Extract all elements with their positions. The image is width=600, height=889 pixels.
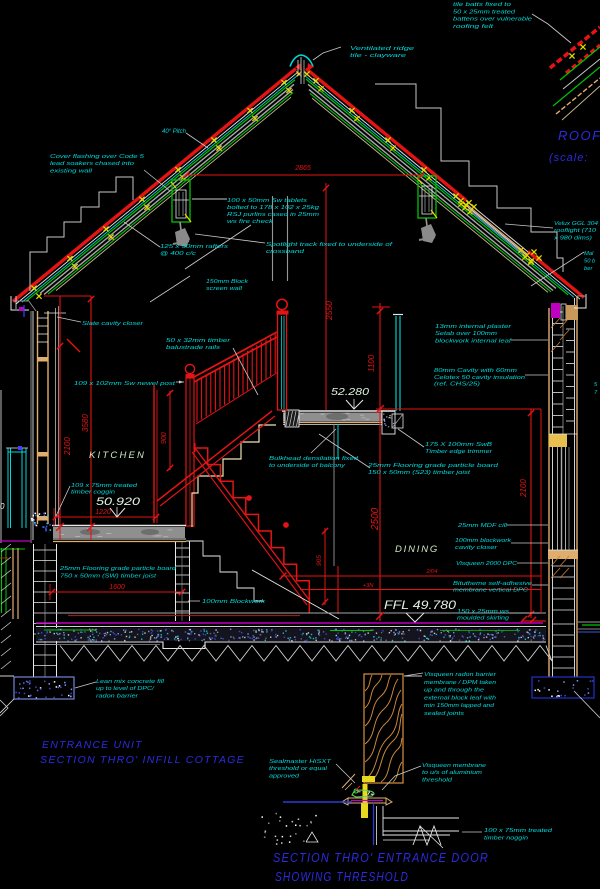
svg-text:up to level of DPC/: up to level of DPC/ — [96, 686, 156, 692]
svg-text:1100: 1100 — [367, 354, 376, 372]
svg-text:Cover flashing over Code 5: Cover flashing over Code 5 — [50, 154, 145, 160]
svg-text:750 x 50mm (SW) timber joist: 750 x 50mm (SW) timber joist — [60, 574, 156, 580]
svg-text:ws fire check: ws fire check — [227, 219, 274, 225]
svg-text:DINING: DINING — [395, 544, 439, 555]
svg-text:2865: 2865 — [294, 165, 311, 172]
svg-text:50.920: 50.920 — [96, 496, 141, 508]
svg-text:ENTRANCE UNIT: ENTRANCE UNIT — [42, 739, 143, 751]
svg-text:13mm internal plaster: 13mm internal plaster — [435, 324, 512, 330]
svg-text:50 x 32mm timber: 50 x 32mm timber — [166, 338, 231, 344]
svg-text:membrane / DPM taken: membrane / DPM taken — [424, 680, 496, 686]
svg-text:tile - clayware: tile - clayware — [350, 53, 407, 59]
svg-text:blockwork internal leaf: blockwork internal leaf — [435, 338, 513, 344]
svg-text:SECTION THRO' ENTRANCE DOOR: SECTION THRO' ENTRANCE DOOR — [273, 850, 489, 865]
svg-text:100 x 50mm Sw tablets: 100 x 50mm Sw tablets — [227, 198, 307, 204]
svg-text:membrane vertical DPC: membrane vertical DPC — [453, 588, 529, 594]
svg-text:to u/s of aluminium: to u/s of aluminium — [422, 770, 482, 776]
svg-text:RSJ purlins cased in 25mm: RSJ purlins cased in 25mm — [227, 212, 319, 218]
svg-text:125 x 50mm rafters: 125 x 50mm rafters — [160, 244, 228, 250]
svg-text:1600: 1600 — [109, 584, 125, 591]
svg-text:Velux GGL 304: Velux GGL 304 — [554, 221, 598, 227]
svg-text:150mm Block: 150mm Block — [206, 279, 249, 285]
svg-text:existing wall: existing wall — [50, 168, 93, 174]
svg-text:2500: 2500 — [370, 507, 381, 531]
svg-text:ber: ber — [584, 266, 593, 272]
svg-text:roofing felt: roofing felt — [453, 24, 494, 30]
svg-text:ROOF S: ROOF S — [558, 128, 600, 143]
svg-text:timber coggin: timber coggin — [71, 490, 115, 496]
svg-text:52.280: 52.280 — [331, 386, 369, 398]
svg-text:25mm Flooring grade particle b: 25mm Flooring grade particle board — [367, 463, 499, 469]
svg-text:Ventilated ridge: Ventilated ridge — [350, 46, 415, 52]
svg-text:up and through the: up and through the — [424, 688, 485, 694]
svg-text:2100: 2100 — [519, 479, 528, 498]
svg-text:SECTION THRO' INFILL COTTAGE: SECTION THRO' INFILL COTTAGE — [40, 754, 245, 766]
svg-text:905: 905 — [316, 555, 323, 566]
svg-text:900: 900 — [161, 432, 168, 444]
svg-text:FFL 49.780: FFL 49.780 — [384, 600, 457, 612]
svg-text:109 x 75mm treated: 109 x 75mm treated — [71, 483, 138, 489]
svg-text:150 x 50mm (S23) timber joist: 150 x 50mm (S23) timber joist — [368, 470, 471, 476]
svg-text:KITCHEN: KITCHEN — [89, 450, 146, 461]
svg-text:Bulkhead densilation fixed: Bulkhead densilation fixed — [269, 456, 359, 462]
svg-text:tile batts fixed to: tile batts fixed to — [453, 2, 512, 8]
svg-text:+3N: +3N — [363, 583, 375, 589]
svg-text:(scale:: (scale: — [549, 152, 588, 164]
svg-text:100mm blockwork: 100mm blockwork — [455, 538, 512, 544]
svg-text:bolted to 178 x 102 x 25kg: bolted to 178 x 102 x 25kg — [227, 205, 320, 211]
svg-text:to underside of balcony: to underside of balcony — [269, 463, 346, 469]
svg-text:50 b: 50 b — [584, 259, 596, 265]
svg-text:lead soakers chased into: lead soakers chased into — [50, 161, 135, 167]
svg-text:Bitutheme self-adhesive: Bitutheme self-adhesive — [453, 581, 533, 587]
svg-text:100mm Blockwork: 100mm Blockwork — [202, 599, 266, 605]
svg-text:threshold: threshold — [422, 777, 453, 783]
svg-text:rooflight (710: rooflight (710 — [554, 228, 597, 234]
svg-text:109 x 102mm Sw newel post: 109 x 102mm Sw newel post — [74, 381, 176, 387]
svg-text:25mm Flooring grade particle b: 25mm Flooring grade particle board — [59, 566, 177, 572]
svg-text:Spotlight track fixed to under: Spotlight track fixed to underside of — [266, 242, 394, 248]
svg-text:Visqueen 2000 DPC: Visqueen 2000 DPC — [456, 561, 518, 567]
svg-text:Visqueen membrane: Visqueen membrane — [422, 763, 487, 769]
svg-text:(ref. CHS/25): (ref. CHS/25) — [434, 382, 480, 388]
svg-text:balustrade rails: balustrade rails — [166, 345, 220, 351]
svg-text:25mm MDF cill: 25mm MDF cill — [457, 523, 508, 529]
svg-text:x 980 dims): x 980 dims) — [553, 235, 592, 241]
svg-text:2550: 2550 — [324, 301, 334, 321]
svg-text:approved: approved — [269, 773, 300, 779]
svg-text:100 x 75mm treated: 100 x 75mm treated — [484, 828, 553, 834]
svg-text:screen wall: screen wall — [206, 286, 243, 292]
svg-text:0: 0 — [0, 502, 5, 511]
svg-text:50 x 25mm treated: 50 x 25mm treated — [453, 9, 516, 15]
svg-text:crossband: crossband — [266, 249, 305, 255]
svg-text:Celotex 50 cavity insulation: Celotex 50 cavity insulation — [434, 375, 525, 381]
svg-text:@ 400 c/c: @ 400 c/c — [160, 251, 196, 257]
svg-text:Lean mix concrete fill: Lean mix concrete fill — [96, 679, 165, 685]
svg-text:min 150mm lapped and: min 150mm lapped and — [424, 703, 495, 709]
svg-text:Visqueen radon barrier: Visqueen radon barrier — [424, 672, 497, 678]
svg-text:2/04: 2/04 — [425, 569, 437, 575]
svg-text:80mm Cavity with 60mm: 80mm Cavity with 60mm — [434, 368, 517, 374]
svg-text:150 x 25mm ws: 150 x 25mm ws — [457, 609, 509, 615]
svg-text:threshold or equal: threshold or equal — [269, 766, 328, 772]
svg-text:Mal: Mal — [584, 251, 594, 257]
svg-text:battens over vulnerable: battens over vulnerable — [453, 17, 533, 23]
svg-text:1220: 1220 — [95, 509, 111, 516]
svg-text:external block leaf with: external block leaf with — [424, 695, 496, 701]
svg-text:timber noggin: timber noggin — [484, 836, 528, 842]
svg-text:2100: 2100 — [63, 437, 72, 456]
svg-text:3580: 3580 — [81, 414, 90, 432]
svg-text:Slate cavity closer: Slate cavity closer — [82, 321, 144, 327]
svg-text:sealed joints: sealed joints — [424, 711, 464, 717]
svg-text:40° Pitch: 40° Pitch — [162, 128, 187, 135]
svg-text:cavity closer: cavity closer — [455, 545, 498, 551]
svg-text:Sealmaster HiSXT: Sealmaster HiSXT — [269, 759, 332, 765]
svg-text:moulded skirting: moulded skirting — [457, 616, 510, 622]
svg-text:SHOWING THRESHOLD: SHOWING THRESHOLD — [275, 869, 409, 884]
svg-text:Timber edge trimmer: Timber edge trimmer — [425, 449, 493, 455]
svg-text:175 X 100mm SwB: 175 X 100mm SwB — [425, 442, 492, 448]
svg-text:radon barrier: radon barrier — [96, 693, 139, 699]
svg-text:Setab over 100mm: Setab over 100mm — [435, 331, 497, 337]
